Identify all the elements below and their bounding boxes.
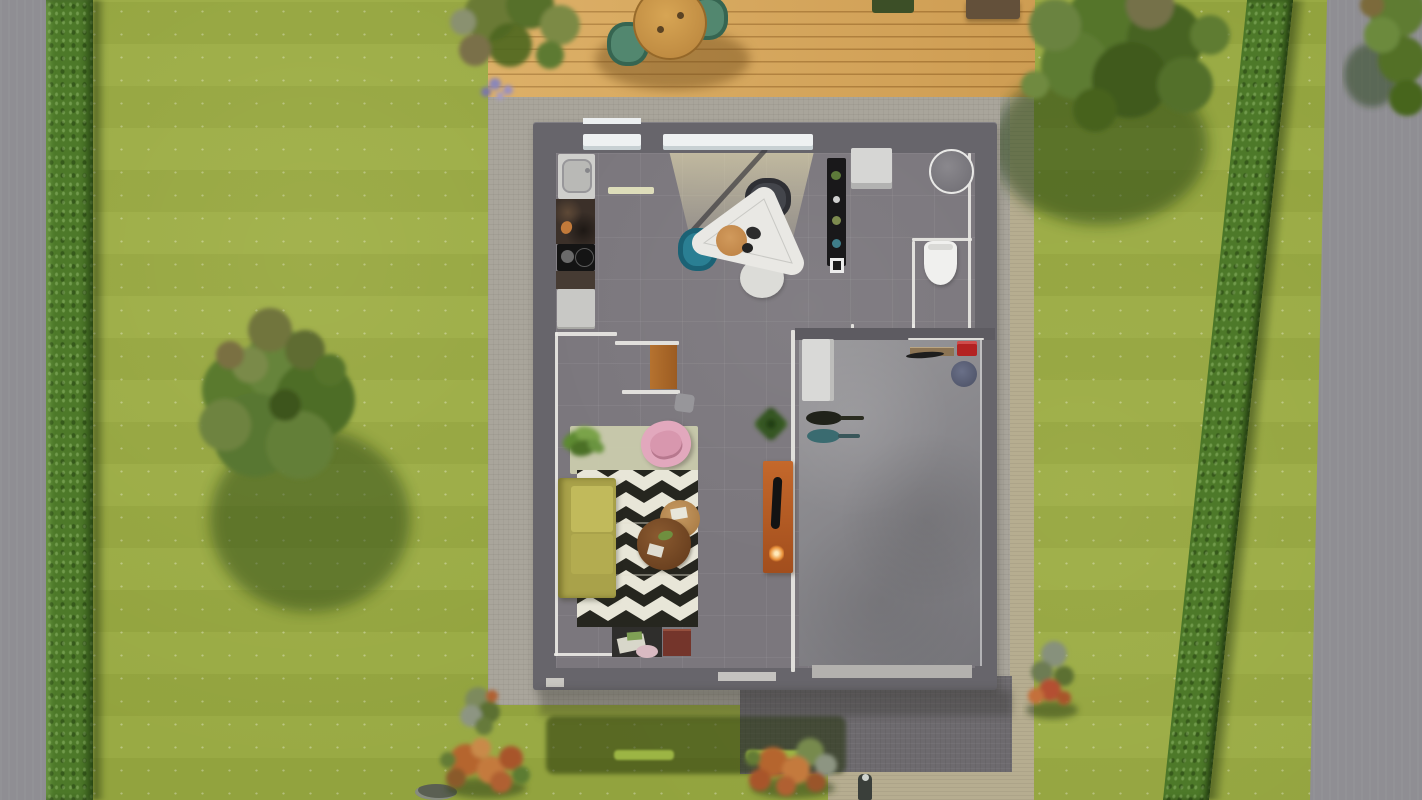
garage-right-hairline [980,340,982,666]
large-table-plant-item [657,529,674,542]
corner-tree [1342,0,1422,130]
glowing-lamp [769,545,784,562]
shelf-picture-frame [830,258,844,273]
serving-plate [716,225,747,256]
table-leg-dot [657,26,664,33]
kitchen-cabinet-white [557,289,595,329]
shelf-white-dot [833,196,840,203]
large-round-coffee-table [637,518,691,570]
garden-figure-cap [862,774,869,781]
purple-flower-cluster [481,78,513,100]
northeast-tree [1000,0,1260,240]
black-tool-handle [840,416,864,420]
window-sill-stub [583,118,641,124]
sideboard-magazine-green [627,631,643,640]
kitchen-counter-dark [556,199,595,244]
white-freezer-box [802,339,834,401]
tv-screen [771,477,783,529]
wall-living-bottom [554,653,618,656]
front-door-threshold [718,672,776,681]
shelf-teal-dot [832,239,841,248]
garden-scene [0,0,1422,800]
wall-living-top-a [555,332,617,336]
red-brown-cabinet [663,629,691,656]
grass-dash-left [614,750,674,760]
cooktop-burner [575,248,594,267]
garage-door-threshold [812,665,972,678]
plate-item-small [742,243,753,253]
corner-doormat [546,678,564,687]
left-lawn-tree [155,295,425,625]
left-hedge-shadow [93,0,106,800]
garden-figure [858,774,872,800]
shelf-olive-dot [832,216,841,225]
hallway-potted-plant [750,402,792,448]
black-sideboard [612,627,662,657]
sofa-cushion-mid [571,534,613,574]
wall-desk-lower [622,390,680,394]
cooktop [557,244,595,271]
toilet-tank-line [928,244,953,250]
window-sill-small [583,134,641,150]
blue-bucket [951,361,977,387]
red-toolbox [957,341,977,356]
deck-corner-foliage [445,0,595,105]
living-potted-plant [558,420,608,464]
red-bush-east [1022,634,1094,724]
sink-basin [562,159,592,193]
tree-canopy [199,308,355,479]
armchair-seat [647,427,685,462]
toilet [924,241,957,285]
small-table-card [670,507,688,521]
sink-tap [585,168,590,173]
window-sill-large [663,134,813,150]
desk-chair [674,393,695,413]
wood-desk [650,345,677,389]
orange-bush-center [738,730,844,800]
kitchen-light-strip [608,187,654,194]
kitchen-sink-unit [558,154,595,199]
table-leg-dot2 [677,12,684,19]
teal-garden-tool [807,429,840,443]
wall-bathroom-vertical [912,241,915,329]
sofa-cushion-top [571,486,613,532]
left-hedge [46,0,93,800]
large-table-card [647,543,664,558]
tall-black-shelf [827,158,846,266]
foliage-canopy [450,0,580,69]
kitchen-counter-low [556,271,595,289]
round-washbasin [929,149,974,194]
orange-tv-sideboard [763,461,793,573]
house-south-shadow [540,690,1012,716]
orange-bush-left [436,730,536,800]
washing-machine [851,148,892,189]
teal-tool-handle [838,434,860,438]
sideboard-pink-plate [636,645,658,658]
cooktop-knob [561,250,574,263]
shelf-plant-dot [831,171,841,180]
olive-sofa [558,478,616,598]
black-garden-tool [806,411,842,425]
planter-green [872,0,914,13]
left-sidewalk [0,0,46,800]
